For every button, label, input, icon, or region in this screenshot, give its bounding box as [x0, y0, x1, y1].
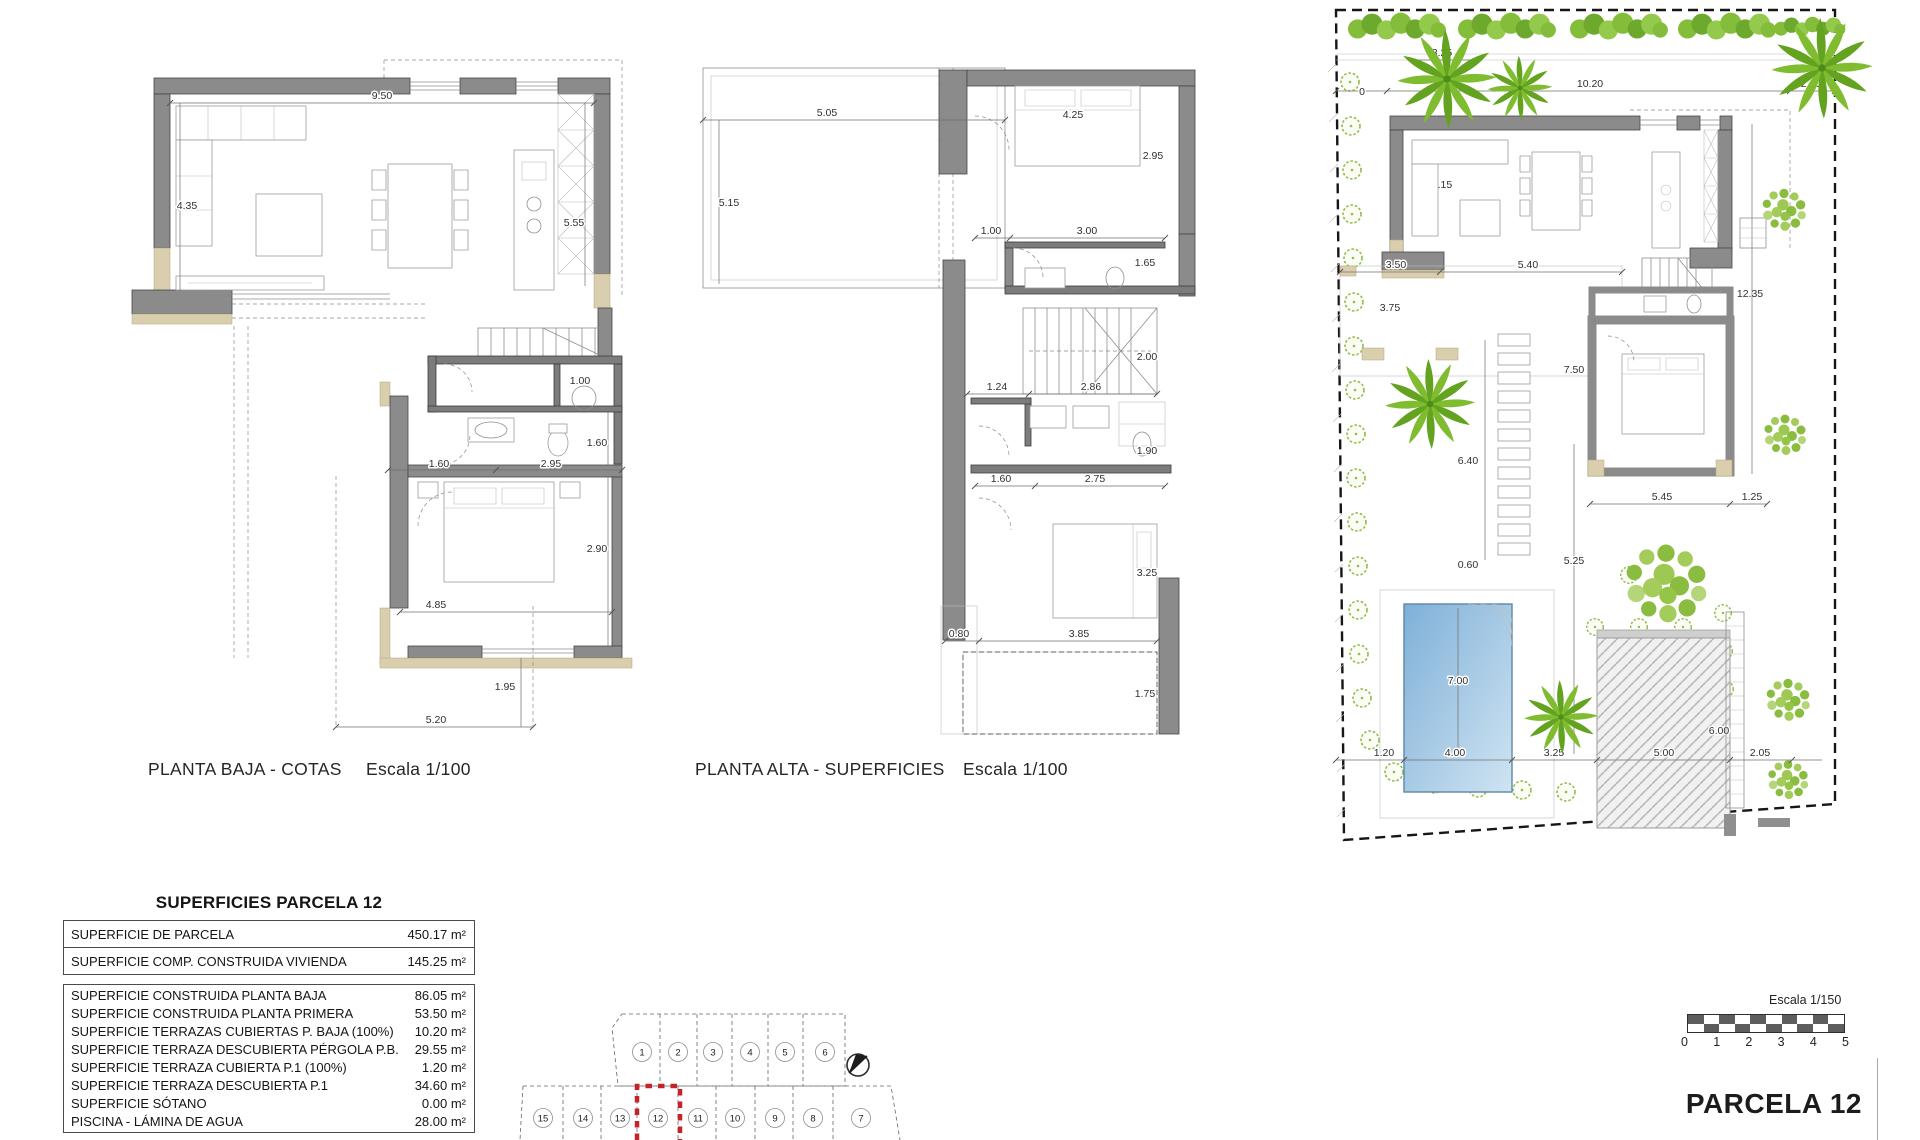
dim-label: 5.25 [1564, 555, 1585, 567]
row-value: 29.55 m² [399, 1043, 474, 1056]
palm-tree [1488, 56, 1553, 121]
dim-label: 4.00 [1445, 747, 1466, 759]
parcel-number: 15 [538, 1114, 549, 1125]
parcel-numbers-bottom: 15 14 13 12 11 10 9 8 7 [534, 1109, 871, 1128]
living-room-furniture [176, 94, 594, 299]
row-label: SUPERFICIE SÓTANO [64, 1097, 388, 1110]
row-value: 86.05 m² [388, 989, 474, 1002]
parcel-title: PARCELA 12 [1640, 1088, 1862, 1120]
parcels-top-row-outline [612, 1014, 845, 1086]
dining-table [388, 164, 452, 268]
table-row: SUPERFICIE TERRAZA DESCUBIERTA P.1 34.60… [64, 1076, 474, 1094]
scale-tick: 4 [1810, 1035, 1817, 1049]
stairs [478, 328, 610, 360]
table-row: SUPERFICIE DE PARCELA 450.17 m² [64, 921, 474, 947]
parcel-number: 2 [675, 1048, 680, 1059]
gate [1758, 818, 1790, 827]
planta-alta-scale: Escala 1/100 [963, 759, 1068, 780]
site-plan: 0 10.20 2.20 3.25 5.15 12.35 [1322, 4, 1912, 862]
dim-label: 0.60 [1458, 559, 1479, 571]
dim-label: 5.45 [1652, 491, 1673, 503]
row-label: SUPERFICIE DE PARCELA [64, 928, 388, 941]
scale-tick: 2 [1745, 1035, 1752, 1049]
drawing-sheet: 1.00 9.50 [0, 0, 1920, 1140]
climbing-plants [1763, 189, 1810, 799]
pergola: 3.50 5.40 3.75 7.50 [1337, 259, 1625, 376]
dim-label: 3.85 [1069, 628, 1090, 640]
graphic-scale-bar [1687, 1014, 1845, 1033]
dim-label: 1.60 [991, 473, 1012, 485]
bedroom-2 [979, 498, 1157, 618]
table-row: SUPERFICIE COMP. CONSTRUIDA VIVIENDA 145… [64, 947, 474, 974]
dim-label: 6.40 [1458, 455, 1479, 467]
dim-label: 2.95 [541, 458, 562, 470]
round-bush [1627, 545, 1707, 623]
row-label: SUPERFICIE TERRAZA DESCUBIERTA PÉRGOLA P… [64, 1043, 399, 1056]
dim-label: 1.00 [570, 375, 591, 387]
furniture [1412, 140, 1680, 248]
floor-plan-planta-alta: 5.05 5.15 4.25 2.95 1.00 3.00 1.65 2.00 … [695, 46, 1205, 781]
dim-label: 10.20 [1577, 78, 1603, 90]
scale-tick: 5 [1842, 1035, 1849, 1049]
dim-label: 12.35 [1737, 288, 1763, 300]
scale-tick: 0 [1681, 1035, 1688, 1049]
bedroom-1 [975, 86, 1140, 166]
dim-label: 1.24 [987, 381, 1008, 393]
table-row: SUPERFICIE TERRAZA CUBIERTA P.1 (100%) 1… [64, 1059, 474, 1077]
sheet-edge-line [1877, 1058, 1878, 1140]
dim-label: 7.00 [1448, 675, 1469, 687]
bed [1622, 354, 1704, 434]
bed [444, 482, 554, 582]
dim-label: 1.00 [981, 225, 1002, 237]
table-row: SUPERFICIE TERRAZA DESCUBIERTA PÉRGOLA P… [64, 1041, 474, 1059]
dim-label: 3.00 [1077, 225, 1098, 237]
row-label: PISCINA - LÁMINA DE AGUA [64, 1115, 388, 1128]
dim-label: 2.75 [1085, 473, 1106, 485]
dim-label: 1.75 [1135, 688, 1156, 700]
dim-label: 5.40 [1518, 259, 1539, 271]
row-label: SUPERFICIE TERRAZA CUBIERTA P.1 (100%) [64, 1061, 388, 1074]
dim-label: 9.50 [372, 90, 393, 102]
paved-patio: 6.00 [1597, 630, 1730, 828]
row-label: SUPERFICIE TERRAZA DESCUBIERTA P.1 [64, 1079, 388, 1092]
palm-tree [1385, 359, 1475, 449]
row-value: 34.60 m² [388, 1079, 474, 1092]
parcel-number: 7 [858, 1114, 863, 1125]
parcel-number: 11 [693, 1114, 703, 1125]
dim-label: 1.95 [495, 681, 516, 693]
table-row: SUPERFICIE TERRAZAS CUBIERTAS P. BAJA (1… [64, 1023, 474, 1041]
dim-label: 0 [1359, 86, 1365, 98]
dim-label: 3.25 [1137, 567, 1158, 579]
parcel-number: 13 [615, 1114, 626, 1125]
dim-label: 5.05 [817, 107, 838, 119]
scale-bar-ticks: 0 1 2 3 4 5 [1681, 1035, 1849, 1049]
planta-baja-title: PLANTA BAJA - COTAS [148, 759, 342, 780]
parcel-number: 12 [653, 1114, 664, 1125]
row-value: 1.20 m² [388, 1061, 474, 1074]
site-scale-label: Escala 1/150 [1769, 993, 1841, 1007]
hedge-row [1348, 13, 1845, 40]
house-bedroom-block: 5.45 1.25 [1587, 290, 1770, 507]
dim-label: 2.95 [1143, 150, 1164, 162]
areas-group-2: SUPERFICIE CONSTRUIDA PLANTA BAJA 86.05 … [63, 984, 475, 1133]
row-label: SUPERFICIE TERRAZAS CUBIERTAS P. BAJA (1… [64, 1025, 394, 1038]
kitchen-cabinets [1704, 130, 1718, 242]
dim-label: 1.90 [1137, 445, 1158, 457]
row-value: 0.00 m² [388, 1097, 474, 1110]
dim-label: 3.75 [1380, 302, 1401, 314]
dim-label: 2.90 [587, 543, 608, 555]
table-row: SUPERFICIE CONSTRUIDA PLANTA BAJA 86.05 … [64, 987, 474, 1005]
parcel-number: 10 [730, 1114, 741, 1125]
parcel-numbers-top: 1 2 3 4 5 6 [633, 1043, 835, 1062]
parcels-key-diagram: 1 2 3 4 5 6 15 14 13 12 11 10 9 8 7 [488, 998, 968, 1140]
dim-label: 4.85 [426, 599, 447, 611]
dim-label: 4.25 [1063, 109, 1084, 121]
row-value: 10.20 m² [394, 1025, 474, 1038]
parcel-number: 14 [578, 1114, 589, 1125]
stepping-stones [1498, 334, 1530, 555]
dim-label: 4.35 [177, 200, 198, 212]
dim-label: 1.60 [429, 458, 450, 470]
dim-label: 5.20 [426, 714, 447, 726]
areas-table: SUPERFICIES PARCELA 12 SUPERFICIE DE PAR… [63, 893, 475, 1140]
floor-plan-planta-baja: 1.00 9.50 [88, 46, 653, 781]
table-row: SUPERFICIE CONSTRUIDA PLANTA PRIMERA 53.… [64, 1005, 474, 1023]
dim-label: 5.00 [1654, 747, 1675, 759]
palm-tree [1398, 30, 1497, 129]
bathroom-1 [1013, 248, 1124, 289]
dim-label: 2.05 [1750, 747, 1771, 759]
dim-label: 7.50 [1564, 364, 1585, 376]
row-label: SUPERFICIE CONSTRUIDA PLANTA PRIMERA [64, 1007, 388, 1020]
planta-baja-scale: Escala 1/100 [366, 759, 471, 780]
areas-table-title: SUPERFICIES PARCELA 12 [63, 893, 475, 913]
scale-tick: 1 [1713, 1035, 1720, 1049]
parcel-number: 4 [747, 1048, 752, 1059]
dim-label: 1.20 [1374, 747, 1395, 759]
dim-label: 2.00 [1137, 351, 1158, 363]
row-value: 28.00 m² [388, 1115, 474, 1128]
parcel-number: 6 [822, 1048, 827, 1059]
dim-label: 5.55 [564, 217, 585, 229]
terrace-upper-dashed [941, 606, 1157, 734]
row-value: 53.50 m² [388, 1007, 474, 1020]
dim-label: 3.50 [1386, 259, 1407, 271]
kitchen-cabinets [558, 94, 594, 274]
row-label: SUPERFICIE CONSTRUIDA PLANTA BAJA [64, 989, 388, 1002]
areas-group-1: SUPERFICIE DE PARCELA 450.17 m² SUPERFIC… [63, 920, 475, 975]
kitchen-island [514, 150, 554, 290]
dim-label: 5.15 [719, 197, 740, 209]
palm-tree [1524, 680, 1598, 754]
scale-tick: 3 [1778, 1035, 1785, 1049]
planta-alta-title: PLANTA ALTA - SUPERFICIES [695, 759, 945, 780]
gate [1724, 814, 1736, 836]
table-row: SUPERFICIE SÓTANO 0.00 m² [64, 1094, 474, 1112]
row-value: 450.17 m² [388, 928, 474, 941]
house-living-block [1382, 110, 1790, 300]
parcel-number: 8 [810, 1114, 815, 1125]
parcel-number: 1 [639, 1048, 644, 1059]
parcel-number: 9 [772, 1114, 777, 1125]
parcel-number: 3 [710, 1048, 715, 1059]
row-label: SUPERFICIE COMP. CONSTRUIDA VIVIENDA [64, 955, 388, 968]
parcel-number: 5 [782, 1048, 787, 1059]
dim-label: 1.65 [1135, 257, 1156, 269]
north-arrow-icon [847, 1054, 869, 1076]
dim-label: 2.86 [1081, 381, 1102, 393]
dim-label: 1.60 [587, 437, 608, 449]
dim-label: 1.25 [1742, 491, 1763, 503]
row-value: 145.25 m² [388, 955, 474, 968]
dim-label: 0.80 [949, 628, 970, 640]
table-row: PISCINA - LÁMINA DE AGUA 28.00 m² [64, 1112, 474, 1130]
